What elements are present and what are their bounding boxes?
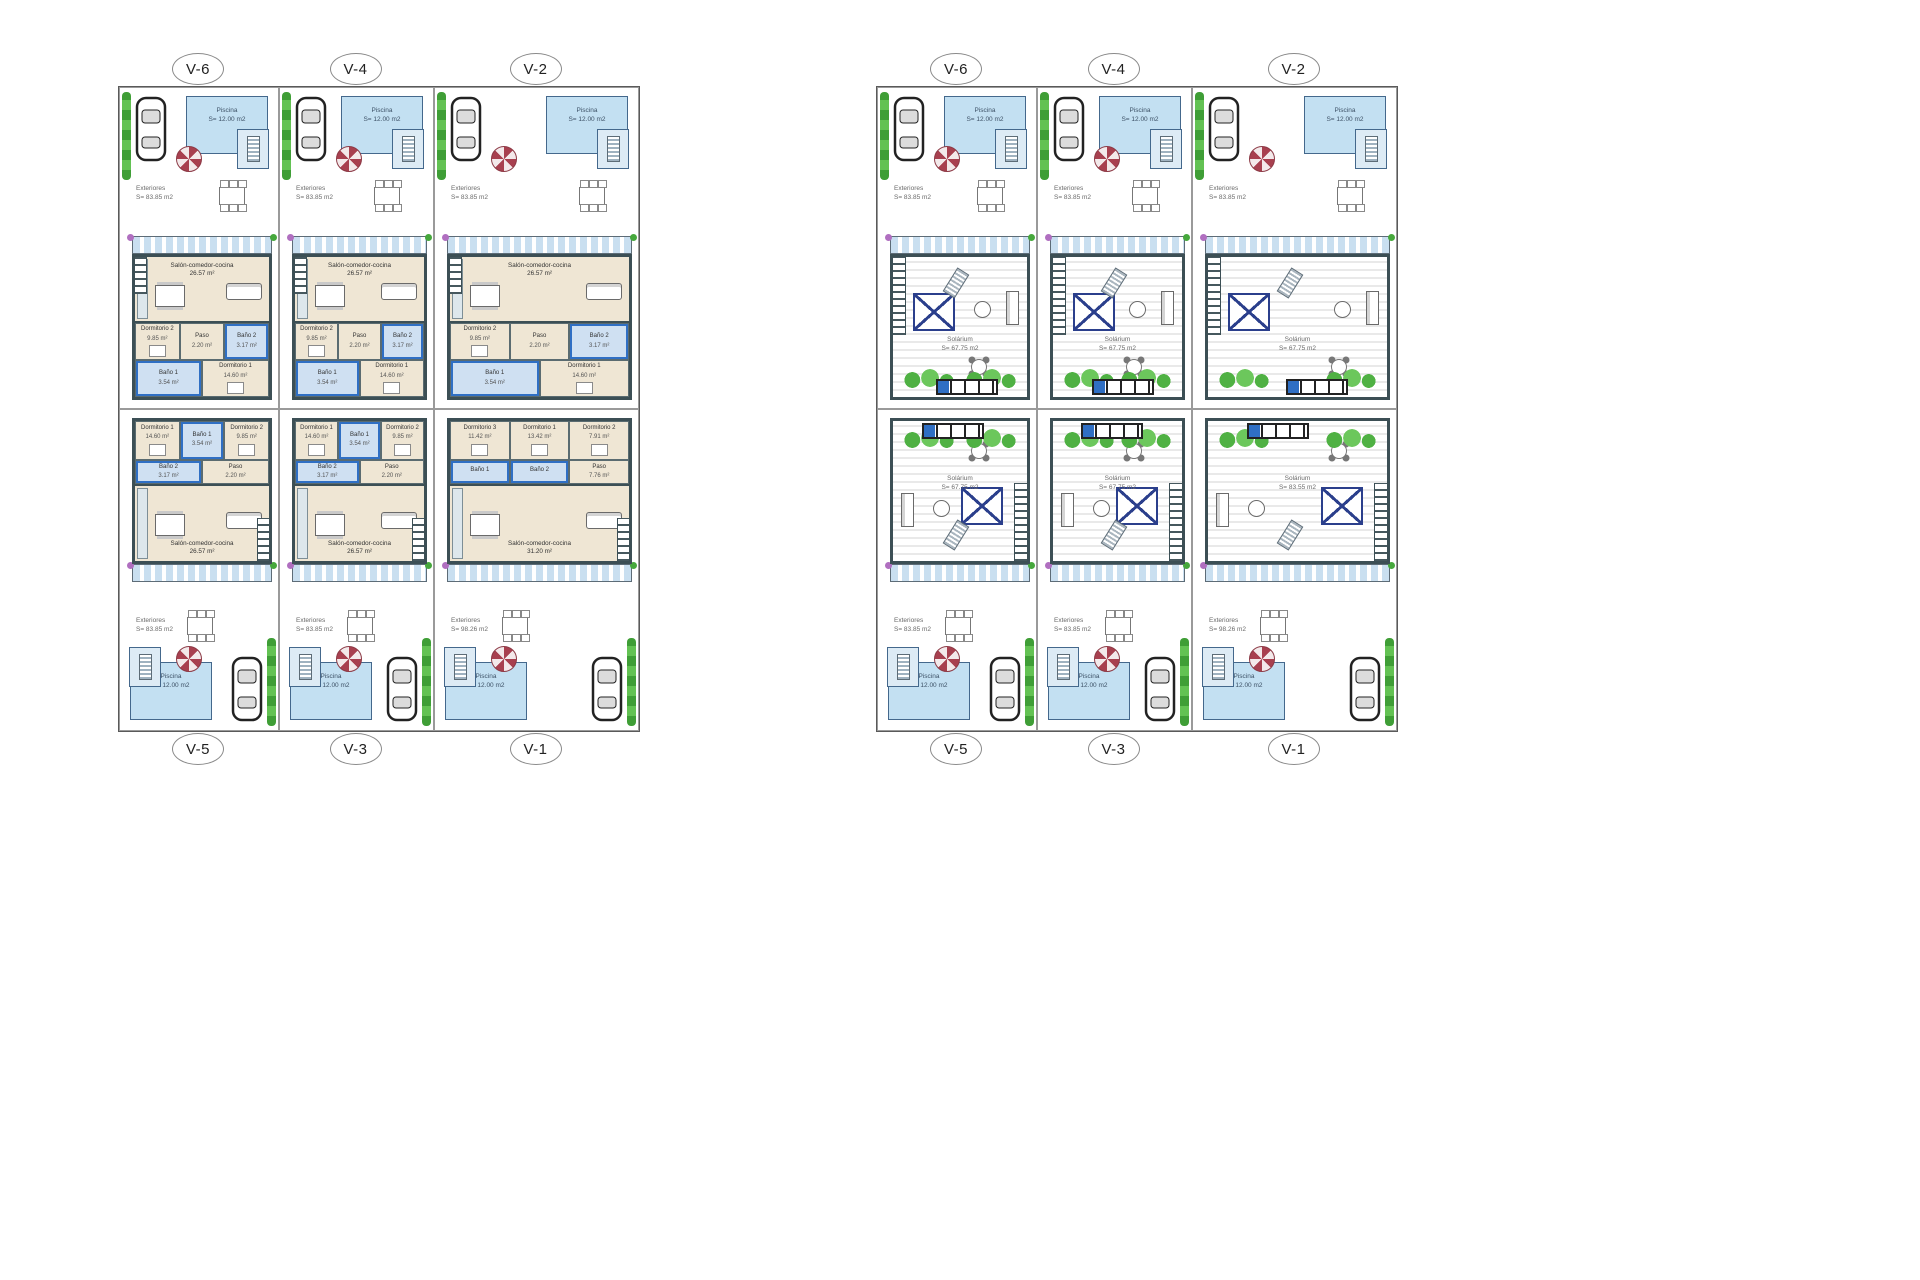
exterior-area: S= 98.26 m2	[451, 625, 488, 634]
room-name: Dormitorio 2	[583, 425, 616, 433]
exterior-label: Exteriores S= 83.85 m2	[296, 184, 333, 202]
pergola-icon	[1050, 564, 1185, 582]
room-area: 9.85 m²	[237, 434, 257, 442]
garden-area: Piscina S= 12.00 m2 Exteriores S= 83.85 …	[878, 88, 1036, 236]
plants-icon	[1218, 369, 1270, 389]
round-table-icon	[1093, 500, 1110, 517]
room: Dormitorio 1 14.60 m²	[540, 360, 630, 397]
lounger-icon	[1057, 654, 1070, 680]
interior-area: Salón-comedor-cocina 31.20 m²	[447, 418, 632, 564]
lounger-icon	[247, 136, 260, 162]
rooms-strip: Dormitorio 3 11.42 m² Dormitorio 1 13.42…	[450, 421, 629, 484]
room: Dormitorio 2 9.85 m²	[135, 323, 180, 360]
exterior-label: Exteriores S= 83.85 m2	[136, 184, 173, 202]
living-dining-kitchen: Salón-comedor-cocina 26.57 m²	[295, 484, 424, 561]
parasol-icon	[1094, 646, 1120, 672]
car-icon	[1052, 96, 1086, 162]
room: Dormitorio 2 9.85 m²	[295, 323, 338, 360]
unit-label: V-2	[510, 53, 562, 85]
unit-label: V-2	[1268, 53, 1320, 85]
lounger-icon	[1101, 267, 1128, 298]
pool-label: Piscina S= 12.00 m2	[945, 97, 1025, 124]
pool-deck	[597, 129, 629, 169]
solarium-label: Solárium S= 67.75 m2	[941, 335, 978, 353]
villa-unit-ground: Piscina S= 12.00 m2 Exteriores S= 83.85 …	[119, 409, 279, 731]
room-name: Paso	[229, 464, 243, 472]
exterior-area: S= 83.85 m2	[1209, 193, 1246, 202]
parasol-icon	[176, 646, 202, 672]
exterior-name: Exteriores	[296, 184, 333, 193]
exterior-area: S= 83.85 m2	[1054, 625, 1091, 634]
lounger-icon	[607, 136, 620, 162]
room: Baño 1 3.54 m²	[338, 421, 381, 460]
car-icon	[1348, 656, 1382, 722]
car-icon	[590, 656, 624, 722]
car-icon	[988, 656, 1022, 722]
room-area: 2.20 m²	[225, 473, 245, 481]
solarium-name: Solárium	[1099, 474, 1136, 483]
exterior-area: S= 83.85 m2	[451, 193, 488, 202]
parasol-icon	[176, 146, 202, 172]
room: Paso 2.20 m²	[338, 323, 381, 360]
solarium-name: Solárium	[1099, 335, 1136, 344]
exterior-area: S= 83.85 m2	[296, 193, 333, 202]
unit-label-cell: V-4	[1036, 52, 1191, 86]
salon-name: Salón-comedor-cocina	[139, 262, 265, 270]
pool: Piscina S= 12.00 m2	[186, 96, 268, 154]
utility-boxes-icon	[1092, 379, 1154, 395]
pool: Piscina S= 12.00 m2	[1203, 662, 1285, 720]
sofa-icon	[1366, 291, 1379, 325]
room-name: Dormitorio 1	[375, 363, 408, 371]
solarium-label: Solárium S= 67.75 m2	[941, 474, 978, 492]
salon-area: 26.57 m²	[139, 270, 265, 278]
room-area: 7.91 m²	[589, 434, 609, 442]
lounger-icon	[897, 654, 910, 680]
room-area: 14.60 m²	[572, 373, 596, 381]
solarium-deck: Solárium S= 67.75 m2	[890, 418, 1030, 564]
pool: Piscina S= 12.00 m2	[130, 662, 212, 720]
room: Paso 7.76 m²	[569, 460, 629, 485]
pool-deck	[289, 647, 321, 687]
unit-label: V-1	[510, 733, 562, 765]
solarium-area: S= 67.75 m2	[1099, 483, 1136, 492]
exterior-label: Exteriores S= 83.85 m2	[1209, 184, 1246, 202]
lounger-icon	[1277, 519, 1304, 550]
exterior-label: Exteriores S= 83.85 m2	[296, 616, 333, 634]
exterior-area: S= 98.26 m2	[1209, 625, 1246, 634]
stairs-icon	[1014, 483, 1027, 561]
room: Dormitorio 3 11.42 m²	[450, 421, 510, 460]
room: Dormitorio 2 9.85 m²	[381, 421, 424, 460]
room: Baño 1 3.54 m²	[135, 360, 202, 397]
solarium-deck: Solárium S= 83.55 m2	[1205, 418, 1390, 564]
hedge-icon	[122, 92, 131, 180]
parasol-icon	[1249, 646, 1275, 672]
villa-unit-solarium: Piscina S= 12.00 m2 Exteriores S= 83.85 …	[1037, 87, 1192, 409]
salon-label: Salón-comedor-cocina 26.57 m²	[139, 540, 265, 556]
solarium-label: Solárium S= 67.75 m2	[1099, 474, 1136, 492]
exterior-label: Exteriores S= 83.85 m2	[894, 184, 931, 202]
round-table-icon	[933, 500, 950, 517]
dining-table-icon	[212, 180, 252, 212]
dining-table-icon	[470, 514, 500, 536]
exterior-name: Exteriores	[451, 616, 488, 625]
hedge-icon	[627, 638, 636, 726]
pool-label: Piscina S= 12.00 m2	[1100, 97, 1180, 124]
room: Baño 2 3.17 m²	[381, 323, 424, 360]
pool-deck	[1202, 647, 1234, 687]
living-dining-kitchen: Salón-comedor-cocina 26.57 m²	[450, 257, 629, 323]
round-table-icon	[974, 301, 991, 318]
rooms-strip: Dormitorio 2 9.85 m² Paso 2.20 m²	[295, 323, 424, 397]
room-name: Dormitorio 3	[463, 425, 496, 433]
room-name: Baño 2	[530, 467, 549, 475]
room-name: Baño 2	[159, 464, 178, 472]
solarium-deck: Solárium S= 67.75 m2	[1050, 254, 1185, 400]
pool-name: Piscina	[372, 106, 393, 115]
exterior-area: S= 83.85 m2	[894, 193, 931, 202]
pergola-icon	[292, 236, 427, 254]
room-area: 14.60 m²	[224, 373, 248, 381]
pool-name: Piscina	[1079, 672, 1100, 681]
pool: Piscina S= 12.00 m2	[290, 662, 372, 720]
room-name: Paso	[385, 464, 399, 472]
solarium-grid: Piscina S= 12.00 m2 Exteriores S= 83.85 …	[876, 86, 1398, 732]
unit-label-cell: V-6	[876, 52, 1036, 86]
room-area: 3.54 m²	[158, 380, 178, 388]
solarium-deck: Solárium S= 67.75 m2	[890, 254, 1030, 400]
room-name: Dormitorio 1	[300, 425, 333, 433]
solarium-area: S= 67.75 m2	[1279, 344, 1316, 353]
villa-unit-solarium: Piscina S= 12.00 m2 Exteriores S= 98.26 …	[1192, 409, 1397, 731]
pool-deck	[887, 647, 919, 687]
unit-label-cell: V-1	[433, 732, 638, 766]
room: Baño 1	[450, 460, 510, 485]
interior-area: Salón-comedor-cocina 26.57 m²	[292, 254, 427, 400]
room-area: 14.60 m²	[380, 373, 404, 381]
salon-label: Salón-comedor-cocina 26.57 m²	[139, 262, 265, 278]
pool-label: Piscina S= 12.00 m2	[342, 97, 422, 124]
room-area: 13.42 m²	[528, 434, 552, 442]
utility-boxes-icon	[1247, 423, 1309, 439]
exterior-label: Exteriores S= 83.85 m2	[1054, 616, 1091, 634]
hedge-icon	[1040, 92, 1049, 180]
exterior-name: Exteriores	[894, 184, 931, 193]
dining-table-icon	[938, 610, 978, 642]
skylight-icon	[1321, 487, 1363, 525]
car-icon	[449, 96, 483, 162]
parasol-icon	[1094, 146, 1120, 172]
solarium-name: Solárium	[1279, 474, 1316, 483]
unit-label-cell: V-2	[433, 52, 638, 86]
villa-unit-ground: Piscina S= 12.00 m2 Exteriores S= 83.85 …	[119, 87, 279, 409]
villa-unit-solarium: Piscina S= 12.00 m2 Exteriores S= 83.85 …	[877, 87, 1037, 409]
pergola-icon	[132, 564, 272, 582]
room: Baño 1 3.54 m²	[180, 421, 225, 460]
room: Dormitorio 1 14.60 m²	[202, 360, 269, 397]
solarium-name: Solárium	[941, 474, 978, 483]
unit-labels-bottom: V-5 V-3 V-1	[876, 732, 1398, 766]
pool-label: Piscina S= 12.00 m2	[1305, 97, 1385, 124]
living-dining-kitchen: Salón-comedor-cocina 26.57 m²	[135, 257, 269, 323]
garden-area: Piscina S= 12.00 m2 Exteriores S= 98.26 …	[1193, 582, 1396, 730]
car-icon	[892, 96, 926, 162]
room-area: 9.85 m²	[470, 336, 490, 344]
kitchen-counter-icon	[452, 488, 463, 559]
dining-table-icon	[315, 285, 345, 307]
sofa-icon	[226, 283, 262, 300]
dining-table-icon	[155, 285, 185, 307]
dining-table-icon	[1330, 180, 1370, 212]
dining-table-icon	[1125, 180, 1165, 212]
room-area: 9.85 m²	[392, 434, 412, 442]
stairs-icon	[1169, 483, 1182, 561]
solarium-panel: V-6 V-4 V-2	[876, 52, 1398, 766]
room-area: 2.20 m²	[192, 343, 212, 351]
exterior-name: Exteriores	[1054, 184, 1091, 193]
room-area: 3.17 m²	[589, 343, 609, 351]
solarium-deck: Solárium S= 67.75 m2	[1205, 254, 1390, 400]
solarium-area: S= 67.75 m2	[1099, 344, 1136, 353]
room: Dormitorio 1 14.60 m²	[295, 421, 338, 460]
pool-deck	[444, 647, 476, 687]
stairs-icon	[295, 257, 307, 294]
unit-labels-top: V-6 V-4 V-2	[118, 52, 640, 86]
room-area: 11.42 m²	[468, 434, 491, 442]
ground-floor-panel: V-6 V-4 V-2	[118, 52, 640, 766]
pergola-icon	[1205, 564, 1390, 582]
room-name: Dormitorio 1	[219, 363, 252, 371]
floor-plan-sheet: V-6 V-4 V-2	[0, 0, 1920, 1280]
pool: Piscina S= 12.00 m2	[944, 96, 1026, 154]
pool: Piscina S= 12.00 m2	[1048, 662, 1130, 720]
unit-label-cell: V-4	[278, 52, 433, 86]
car-icon	[1143, 656, 1177, 722]
room-area: 14.60 m²	[145, 434, 169, 442]
exterior-name: Exteriores	[296, 616, 333, 625]
stairs-icon	[450, 257, 462, 294]
salon-name: Salón-comedor-cocina	[455, 262, 623, 270]
unit-label-cell: V-3	[278, 732, 433, 766]
hedge-icon	[1025, 638, 1034, 726]
pool-area: S= 12.00 m2	[208, 115, 245, 124]
pool-name: Piscina	[217, 106, 238, 115]
pergola-icon	[890, 236, 1030, 254]
unit-label: V-4	[330, 53, 382, 85]
lounger-icon	[1005, 136, 1018, 162]
room-name: Baño 1	[470, 467, 489, 475]
dining-table-icon	[1253, 610, 1293, 642]
stairs-icon	[893, 257, 906, 335]
lounger-icon	[402, 136, 415, 162]
room: Dormitorio 1 14.60 m²	[135, 421, 180, 460]
stairs-icon	[1374, 483, 1387, 561]
rooms-strip: Dormitorio 1 14.60 m² Baño 1 3.54 m²	[135, 421, 269, 484]
unit-label-cell: V-5	[118, 732, 278, 766]
exterior-area: S= 83.85 m2	[136, 625, 173, 634]
hedge-icon	[1195, 92, 1204, 180]
room: Dormitorio 2 9.85 m²	[224, 421, 269, 460]
room: Baño 2 3.17 m²	[295, 460, 360, 485]
unit-labels-top: V-6 V-4 V-2	[876, 52, 1398, 86]
unit-labels-bottom: V-5 V-3 V-1	[118, 732, 640, 766]
room: Baño 1 3.54 m²	[295, 360, 360, 397]
stairs-icon	[412, 518, 424, 561]
unit-label-cell: V-6	[118, 52, 278, 86]
room-name: Dormitorio 1	[523, 425, 556, 433]
pool-deck	[237, 129, 269, 169]
exterior-name: Exteriores	[1054, 616, 1091, 625]
car-icon	[230, 656, 264, 722]
car-icon	[294, 96, 328, 162]
dining-table-icon	[180, 610, 220, 642]
exterior-name: Exteriores	[451, 184, 488, 193]
room-area: 2.20 m²	[349, 343, 369, 351]
room-name: Dormitorio 1	[141, 425, 174, 433]
utility-boxes-icon	[922, 423, 984, 439]
stairs-icon	[257, 518, 269, 561]
pergola-icon	[890, 564, 1030, 582]
parasol-icon	[491, 146, 517, 172]
room-area: 3.17 m²	[317, 473, 337, 481]
living-dining-kitchen: Salón-comedor-cocina 26.57 m²	[295, 257, 424, 323]
hedge-icon	[422, 638, 431, 726]
sofa-icon	[381, 283, 417, 300]
room-area: 3.17 m²	[237, 343, 257, 351]
garden-area: Piscina S= 12.00 m2 Exteriores S= 83.85 …	[280, 88, 433, 236]
pool-area: S= 12.00 m2	[1326, 115, 1363, 124]
salon-name: Salón-comedor-cocina	[299, 262, 420, 270]
solarium-area: S= 83.55 m2	[1279, 483, 1316, 492]
pool-deck	[392, 129, 424, 169]
dining-table-icon	[495, 610, 535, 642]
exterior-area: S= 83.85 m2	[894, 625, 931, 634]
pergola-icon	[447, 236, 632, 254]
salon-area: 31.20 m²	[455, 548, 623, 556]
room-area: 2.20 m²	[529, 343, 549, 351]
car-icon	[1207, 96, 1241, 162]
exterior-label: Exteriores S= 98.26 m2	[1209, 616, 1246, 634]
exterior-name: Exteriores	[136, 616, 173, 625]
skylight-icon	[961, 487, 1003, 525]
lounger-icon	[299, 654, 312, 680]
room-name: Dormitorio 2	[141, 326, 174, 334]
interior-area: Salón-comedor-cocina 26.57 m²	[132, 254, 272, 400]
unit-label-cell: V-2	[1191, 52, 1396, 86]
unit-label: V-6	[172, 53, 224, 85]
hedge-icon	[1385, 638, 1394, 726]
hedge-icon	[282, 92, 291, 180]
utility-boxes-icon	[1081, 423, 1143, 439]
hedge-icon	[437, 92, 446, 180]
round-table-icon	[1248, 500, 1265, 517]
exterior-label: Exteriores S= 98.26 m2	[451, 616, 488, 634]
skylight-icon	[1116, 487, 1158, 525]
villa-unit-ground: Piscina S= 12.00 m2 Exteriores S= 83.85 …	[434, 87, 639, 409]
lounger-icon	[454, 654, 467, 680]
rooms-strip: Dormitorio 1 14.60 m² Baño 1 3.54 m²	[295, 421, 424, 484]
solarium-deck: Solárium S= 67.75 m2	[1050, 418, 1185, 564]
salon-name: Salón-comedor-cocina	[299, 540, 420, 548]
garden-area: Piscina S= 12.00 m2 Exteriores S= 83.85 …	[435, 88, 638, 236]
utility-boxes-icon	[936, 379, 998, 395]
room: Dormitorio 2 9.85 m²	[450, 323, 510, 360]
lounger-icon	[1101, 519, 1128, 550]
room-name: Dormitorio 2	[386, 425, 419, 433]
pool: Piscina S= 12.00 m2	[1304, 96, 1386, 154]
pool-deck	[1150, 129, 1182, 169]
room-name: Paso	[195, 333, 209, 341]
salon-name: Salón-comedor-cocina	[139, 540, 265, 548]
garden-area: Piscina S= 12.00 m2 Exteriores S= 83.85 …	[1038, 88, 1191, 236]
pool-label: Piscina S= 12.00 m2	[547, 97, 627, 124]
round-table-icon	[1129, 301, 1146, 318]
sofa-icon	[586, 283, 622, 300]
room-area: 3.54 m²	[349, 441, 369, 449]
pool-area: S= 12.00 m2	[363, 115, 400, 124]
lounger-icon	[1277, 267, 1304, 298]
pool-name: Piscina	[919, 672, 940, 681]
pergola-icon	[1205, 236, 1390, 254]
plants-icon	[1325, 429, 1377, 449]
dining-table-icon	[315, 514, 345, 536]
pool-name: Piscina	[161, 672, 182, 681]
pool-name: Piscina	[321, 672, 342, 681]
kitchen-counter-icon	[137, 488, 148, 559]
parasol-icon	[1249, 146, 1275, 172]
room-area: 3.17 m²	[392, 343, 412, 351]
solarium-name: Solárium	[1279, 335, 1316, 344]
garden-area: Piscina S= 12.00 m2 Exteriores S= 83.85 …	[280, 582, 433, 730]
hedge-icon	[880, 92, 889, 180]
villa-unit-solarium: Piscina S= 12.00 m2 Exteriores S= 83.85 …	[877, 409, 1037, 731]
salon-area: 26.57 m²	[299, 548, 420, 556]
parasol-icon	[491, 646, 517, 672]
hedge-icon	[1180, 638, 1189, 726]
pool-deck	[1047, 647, 1079, 687]
room: Baño 2 3.17 m²	[135, 460, 202, 485]
room: Dormitorio 1 13.42 m²	[510, 421, 570, 460]
exterior-label: Exteriores S= 83.85 m2	[1054, 184, 1091, 202]
car-icon	[385, 656, 419, 722]
room-name: Baño 2	[590, 333, 609, 341]
pool: Piscina S= 12.00 m2	[341, 96, 423, 154]
pool-area: S= 12.00 m2	[1121, 115, 1158, 124]
garden-area: Piscina S= 12.00 m2 Exteriores S= 98.26 …	[435, 582, 638, 730]
unit-label-cell: V-1	[1191, 732, 1396, 766]
room-area: 2.20 m²	[382, 473, 402, 481]
dining-table-icon	[367, 180, 407, 212]
unit-label-cell: V-5	[876, 732, 1036, 766]
room-name: Paso	[533, 333, 547, 341]
room-name: Baño 2	[237, 333, 256, 341]
villa-unit-ground: Piscina S= 12.00 m2 Exteriores S= 98.26 …	[434, 409, 639, 731]
exterior-area: S= 83.85 m2	[296, 625, 333, 634]
sofa-icon	[1061, 493, 1074, 527]
room-name: Baño 1	[485, 370, 504, 378]
room-name: Baño 1	[159, 370, 178, 378]
dining-table-icon	[1098, 610, 1138, 642]
unit-label: V-5	[172, 733, 224, 765]
room: Paso 2.20 m²	[510, 323, 570, 360]
parasol-icon	[934, 146, 960, 172]
ground-floor-grid: Piscina S= 12.00 m2 Exteriores S= 83.85 …	[118, 86, 640, 732]
pool-label: Piscina S= 12.00 m2	[187, 97, 267, 124]
living-dining-kitchen: Salón-comedor-cocina 26.57 m²	[135, 484, 269, 561]
stairs-icon	[617, 518, 629, 561]
solarium-area: S= 67.75 m2	[941, 483, 978, 492]
